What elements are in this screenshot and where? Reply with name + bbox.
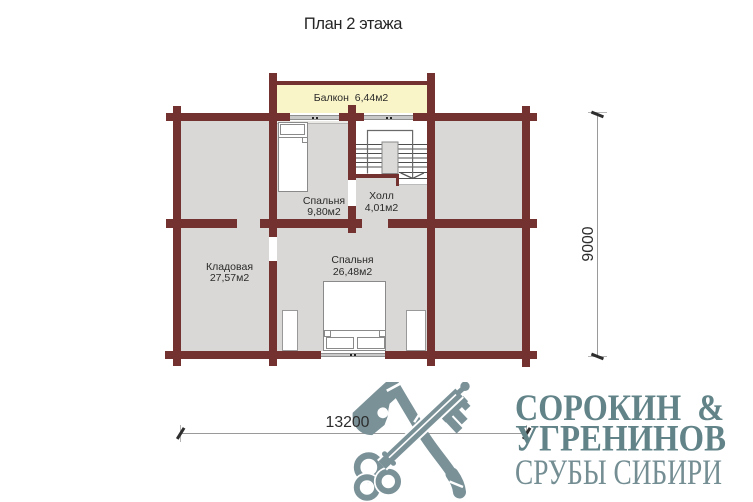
svg-text:СРУБЫ СИБИРИ: СРУБЫ СИБИРИ [515, 452, 722, 492]
